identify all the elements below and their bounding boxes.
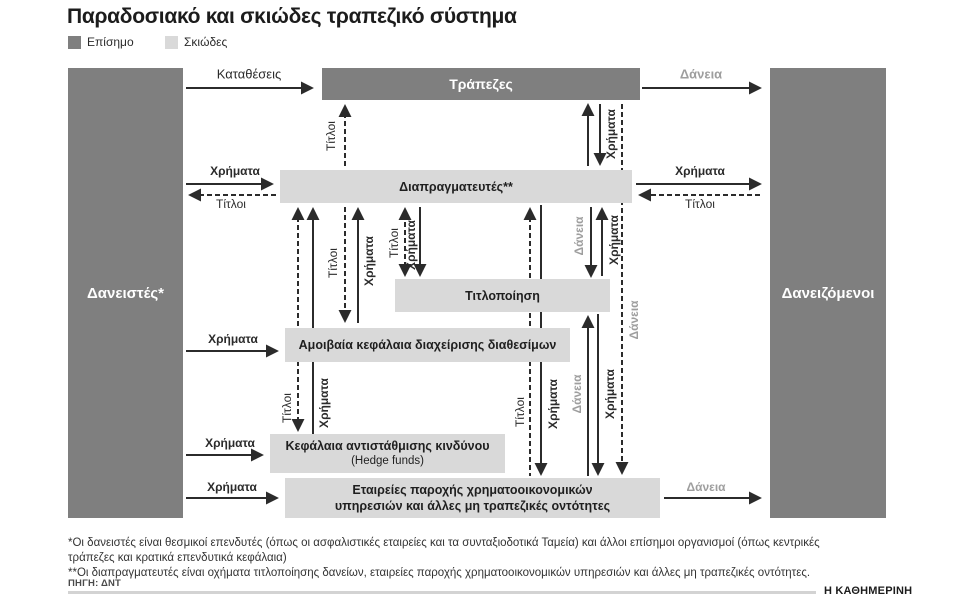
- flow-label-money-hedge-dealers: Χρήματα: [317, 378, 331, 428]
- node-borrowers-label: Δανειζόμενοι: [782, 285, 875, 302]
- flow-label-loans-fincos-securitization: Δάνεια: [570, 374, 584, 413]
- node-fincos-label-line1: Εταιρείες παροχής χρηματοοικονομικών: [352, 482, 592, 498]
- flow-label-securities-dealers-banks: Τίτλοι: [324, 121, 338, 151]
- infographic-shadow-banking: Παραδοσιακό και σκιώδες τραπεζικό σύστημ…: [0, 0, 960, 600]
- node-money-market-funds: Αμοιβαία κεφάλαια διαχείρισης διαθεσίμων: [285, 328, 570, 362]
- node-dealers: Διαπραγματευτές**: [280, 170, 632, 203]
- flow-label-securities-dealers-mmf: Τίτλοι: [326, 248, 340, 278]
- flow-label-loans-top: Δάνεια: [680, 67, 722, 82]
- node-borrowers: Δανειζόμενοι: [770, 68, 886, 518]
- node-securitization-label: Τιτλοποίηση: [465, 289, 540, 303]
- flow-label-money-securitization-fincos: Χρήματα: [603, 369, 617, 419]
- node-fincos-label-line2: υπηρεσιών και άλλες μη τραπεζικές οντότη…: [335, 498, 610, 514]
- flow-label-deposits: Καταθέσεις: [217, 67, 282, 82]
- flow-label-money-right-dealers: Χρήματα: [675, 164, 725, 178]
- flow-label-money-mmf: Χρήματα: [208, 332, 258, 346]
- flow-label-securities-left-dealers: Τίτλοι: [216, 197, 246, 211]
- node-hedge-funds: Κεφάλαια αντιστάθμισης κινδύνου (Hedge f…: [270, 434, 505, 473]
- flow-label-securities-securitization-dealers: Τίτλοι: [387, 228, 401, 258]
- node-lenders-label: Δανειστές*: [87, 285, 164, 302]
- flow-label-money-dealers-securitization: Χρήματα: [404, 220, 418, 270]
- node-lenders: Δανειστές*: [68, 68, 183, 518]
- flow-label-money-dealers-fincos: Χρήματα: [546, 379, 560, 429]
- footnote-line-1: *Οι δανειστές είναι θεσμικοί επενδυτές (…: [68, 536, 896, 551]
- node-banks: Τράπεζες: [322, 68, 640, 100]
- node-mmf-label: Αμοιβαία κεφάλαια διαχείρισης διαθεσίμων: [299, 338, 557, 352]
- flow-label-money-left-dealers: Χρήματα: [210, 164, 260, 178]
- flow-label-securities-fincos-dealers: Τίτλοι: [513, 397, 527, 427]
- flow-label-money-mmf-dealers: Χρήματα: [362, 236, 376, 286]
- flow-label-money-fincos: Χρήματα: [207, 480, 257, 494]
- footer-divider: [68, 591, 816, 594]
- node-banks-label: Τράπεζες: [449, 76, 513, 92]
- node-dealers-label: Διαπραγματευτές**: [399, 180, 513, 194]
- node-hedge-label: Κεφάλαια αντιστάθμισης κινδύνου: [285, 439, 489, 455]
- flow-label-loans-dealers-securitization: Δάνεια: [572, 216, 586, 255]
- footnote-line-3: **Οι διαπραγματευτές είναι οχήματα τιτλο…: [68, 566, 896, 581]
- flow-label-money-hedge: Χρήματα: [205, 436, 255, 450]
- flow-label-loans-bottom: Δάνεια: [686, 480, 725, 494]
- footnotes: *Οι δανειστές είναι θεσμικοί επενδυτές (…: [68, 536, 896, 582]
- flow-label-money-securitization-dealers: Χρήματα: [607, 215, 621, 265]
- flow-label-securities-dealers-hedge: Τίτλοι: [280, 393, 294, 423]
- newspaper-brand: Η ΚΑΘΗΜΕΡΙΝΗ: [824, 585, 912, 597]
- flow-label-securities-right-dealers: Τίτλοι: [685, 197, 715, 211]
- node-securitization: Τιτλοποίηση: [395, 279, 610, 312]
- node-hedge-sublabel: (Hedge funds): [351, 454, 424, 468]
- flow-label-loans-banks-fincos: Δάνεια: [627, 300, 641, 339]
- source-credit: ΠΗΓΗ: ΔΝΤ: [68, 578, 121, 589]
- footnote-line-2: τράπεζες και κρατικά επενδυτικά κεφάλαια…: [68, 551, 896, 566]
- flow-label-money-banks-dealers: Χρήματα: [604, 109, 618, 159]
- node-finance-companies: Εταιρείες παροχής χρηματοοικονομικών υπη…: [285, 478, 660, 518]
